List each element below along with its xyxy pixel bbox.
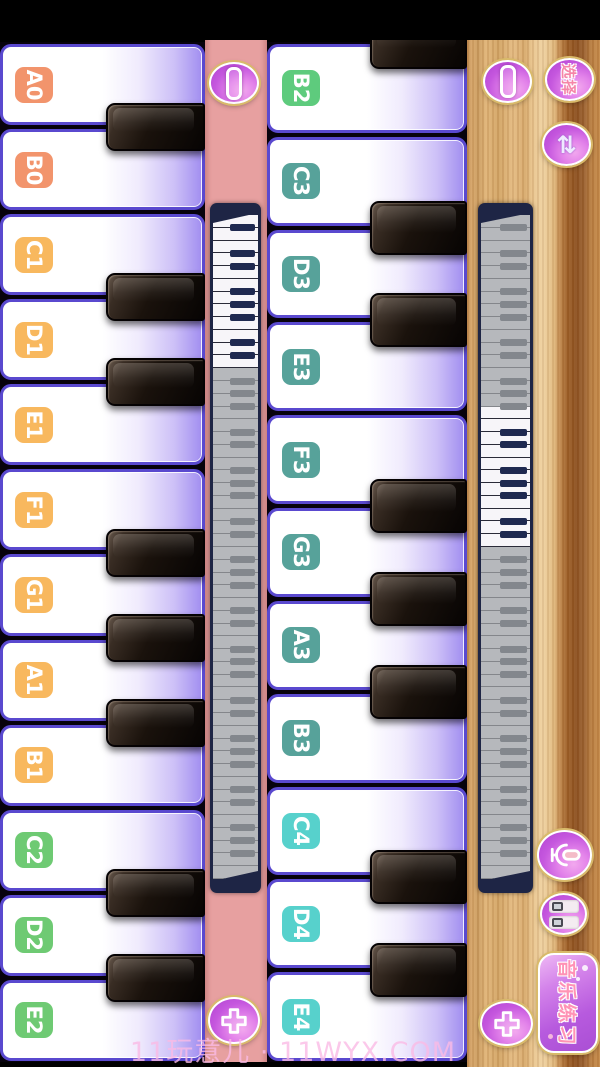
- plus-icon: [218, 1005, 250, 1037]
- minimap-black-key: [500, 735, 527, 742]
- black-key-A3-sharp[interactable]: [370, 665, 467, 719]
- settings-toggles-button[interactable]: [540, 893, 587, 935]
- minimap-black-key: [500, 352, 527, 359]
- black-key-A1-sharp[interactable]: [106, 699, 205, 747]
- minimap-black-key: [230, 620, 255, 627]
- minimap-black-key: [230, 429, 255, 436]
- key-label-F1: F1: [15, 492, 53, 528]
- left-pause-button[interactable]: [209, 62, 259, 104]
- right-scroll-strip: 选择 ⇅: [467, 0, 600, 1067]
- key-label-B3: B3: [282, 720, 320, 756]
- minimap-black-key: [230, 646, 255, 653]
- key-label-F3: F3: [282, 442, 320, 478]
- minimap-black-key: [230, 735, 255, 742]
- key-label-C4: C4: [282, 813, 320, 849]
- black-key-D2-sharp[interactable]: [106, 954, 205, 1002]
- minimap-black-key: [230, 480, 255, 487]
- minimap-black-key: [500, 646, 527, 653]
- right-minimap-keys: [481, 207, 530, 889]
- minimap-black-key: [230, 301, 255, 308]
- minimap-black-key: [500, 429, 527, 436]
- minimap-black-key: [500, 339, 527, 346]
- minimap-black-key: [500, 556, 527, 563]
- key-label-D2: D2: [15, 917, 53, 953]
- key-label-A3: A3: [282, 627, 320, 663]
- key-label-C1: C1: [15, 237, 53, 273]
- minimap-black-key: [230, 658, 255, 665]
- minimap-black-key: [500, 403, 527, 410]
- key-label-B1: B1: [15, 747, 53, 783]
- minimap-black-key: [500, 569, 527, 576]
- minimap-black-key: [500, 288, 527, 295]
- toggle-switch: [549, 900, 579, 913]
- black-key-C1-sharp[interactable]: [106, 273, 205, 321]
- minimap-black-key: [230, 263, 255, 270]
- minimap-black-key: [230, 607, 255, 614]
- plus-icon: [491, 1008, 523, 1040]
- key-label-E1: E1: [15, 407, 53, 443]
- pause-bar-icon: [226, 67, 242, 100]
- minimap-black-key: [500, 761, 527, 768]
- black-key-F1-sharp[interactable]: [106, 529, 205, 577]
- minimap-black-key: [230, 671, 255, 678]
- minimap-black-key: [230, 390, 255, 397]
- minimap-black-key: [500, 607, 527, 614]
- minimap-black-key: [500, 837, 527, 844]
- key-label-G1: G1: [15, 577, 53, 613]
- key-label-A1: A1: [15, 662, 53, 698]
- left-minimap-keys: [213, 207, 258, 889]
- minimap-black-key: [230, 799, 255, 806]
- key-label-E3: E3: [282, 349, 320, 385]
- right-add-button[interactable]: [480, 1001, 533, 1046]
- minimap-black-key: [500, 467, 527, 474]
- top-bezel: [0, 0, 600, 40]
- minimap-black-key: [230, 403, 255, 410]
- minimap-black-key: [500, 492, 527, 499]
- left-scroll-strip: [205, 0, 267, 1067]
- minimap-black-key: [230, 288, 255, 295]
- pause-bar-icon: [500, 65, 516, 98]
- minimap-black-key: [500, 263, 527, 270]
- minimap-black-key: [500, 314, 527, 321]
- minimap-black-key: [500, 824, 527, 831]
- minimap-black-key: [500, 799, 527, 806]
- minimap-black-key: [230, 314, 255, 321]
- minimap-black-key: [230, 339, 255, 346]
- minimap-black-key: [500, 582, 527, 589]
- minimap-black-key: [230, 518, 255, 525]
- minimap-black-key: [500, 786, 527, 793]
- minimap-black-key: [230, 850, 255, 857]
- key-label-C2: C2: [15, 832, 53, 868]
- black-key-D4-sharp[interactable]: [370, 943, 467, 997]
- piano-app-screen: A0B0C1D1E1F1G1A1B1C2D2E2 B2C3D3E3F3G3A3B…: [0, 0, 600, 1067]
- key-label-G3: G3: [282, 534, 320, 570]
- minimap-black-key: [500, 518, 527, 525]
- select-button[interactable]: 选择: [545, 58, 594, 101]
- minimap-black-key: [500, 850, 527, 857]
- toggles-icon: [549, 898, 579, 930]
- black-key-C2-sharp[interactable]: [106, 869, 205, 917]
- key-label-B0: B0: [15, 152, 53, 188]
- minimap-black-key: [230, 837, 255, 844]
- minimap-black-key: [500, 671, 527, 678]
- microphone-icon: [548, 838, 582, 872]
- minimap-black-key: [500, 378, 527, 385]
- minimap-black-key: [230, 569, 255, 576]
- minimap-black-key: [230, 786, 255, 793]
- select-button-label: 选择: [559, 63, 580, 95]
- toggle-switch: [549, 916, 579, 929]
- minimap-black-key: [230, 224, 255, 231]
- black-key-C3-sharp[interactable]: [370, 201, 467, 255]
- minimap-black-key: [230, 748, 255, 755]
- minimap-black-key: [500, 620, 527, 627]
- swap-arrows-icon: ⇅: [556, 131, 576, 159]
- left-keyboard: A0B0C1D1E1F1G1A1B1C2D2E2: [0, 42, 205, 1063]
- minimap-black-key: [230, 824, 255, 831]
- key-label-D4: D4: [282, 906, 320, 942]
- minimap-white-key: [481, 866, 530, 879]
- minimap-black-key: [230, 556, 255, 563]
- minimap-black-key: [500, 250, 527, 257]
- bottom-bezel: [0, 1062, 467, 1067]
- sparkle: [548, 1034, 553, 1039]
- black-key-D1-sharp[interactable]: [106, 358, 205, 406]
- key-label-B2: B2: [282, 70, 320, 106]
- minimap-black-key: [230, 492, 255, 499]
- minimap-black-key: [230, 352, 255, 359]
- black-key-C4-sharp[interactable]: [370, 850, 467, 904]
- black-key-D3-sharp[interactable]: [370, 293, 467, 347]
- key-label-E4: E4: [282, 999, 320, 1035]
- minimap-black-key: [500, 390, 527, 397]
- minimap-black-key: [230, 467, 255, 474]
- sparkle: [582, 965, 588, 971]
- minimap-black-key: [230, 761, 255, 768]
- minimap-black-key: [500, 480, 527, 487]
- minimap-black-key: [500, 697, 527, 704]
- key-label-D1: D1: [15, 322, 53, 358]
- black-key-G3-sharp[interactable]: [370, 572, 467, 626]
- minimap-black-key: [500, 531, 527, 538]
- left-add-button[interactable]: [208, 997, 260, 1044]
- right-keyboard: B2C3D3E3F3G3A3B3C4D4E4: [267, 42, 467, 1063]
- minimap-black-key: [230, 378, 255, 385]
- key-label-D3: D3: [282, 256, 320, 292]
- left-keyboard-minimap[interactable]: [210, 203, 261, 893]
- minimap-black-key: [500, 224, 527, 231]
- minimap-black-key: [230, 250, 255, 257]
- minimap-black-key: [500, 748, 527, 755]
- minimap-black-key: [230, 531, 255, 538]
- record-button[interactable]: [537, 830, 592, 880]
- music-practice-button[interactable]: 音乐练习: [538, 953, 598, 1053]
- key-label-A0: A0: [15, 67, 53, 103]
- swap-keyboards-button[interactable]: ⇅: [542, 123, 591, 166]
- key-label-C3: C3: [282, 163, 320, 199]
- right-keyboard-minimap[interactable]: [478, 203, 533, 893]
- key-label-E2: E2: [15, 1002, 53, 1038]
- minimap-black-key: [500, 658, 527, 665]
- black-key-A0-sharp[interactable]: [106, 103, 205, 151]
- minimap-black-key: [500, 441, 527, 448]
- minimap-black-key: [230, 710, 255, 717]
- right-pause-button[interactable]: [483, 60, 532, 103]
- minimap-black-key: [230, 441, 255, 448]
- minimap-black-key: [230, 582, 255, 589]
- music-practice-label: 音乐练习: [555, 959, 582, 1047]
- minimap-black-key: [500, 710, 527, 717]
- black-key-G1-sharp[interactable]: [106, 614, 205, 662]
- minimap-white-key: [213, 866, 258, 879]
- minimap-black-key: [500, 301, 527, 308]
- minimap-black-key: [230, 697, 255, 704]
- black-key-F3-sharp[interactable]: [370, 479, 467, 533]
